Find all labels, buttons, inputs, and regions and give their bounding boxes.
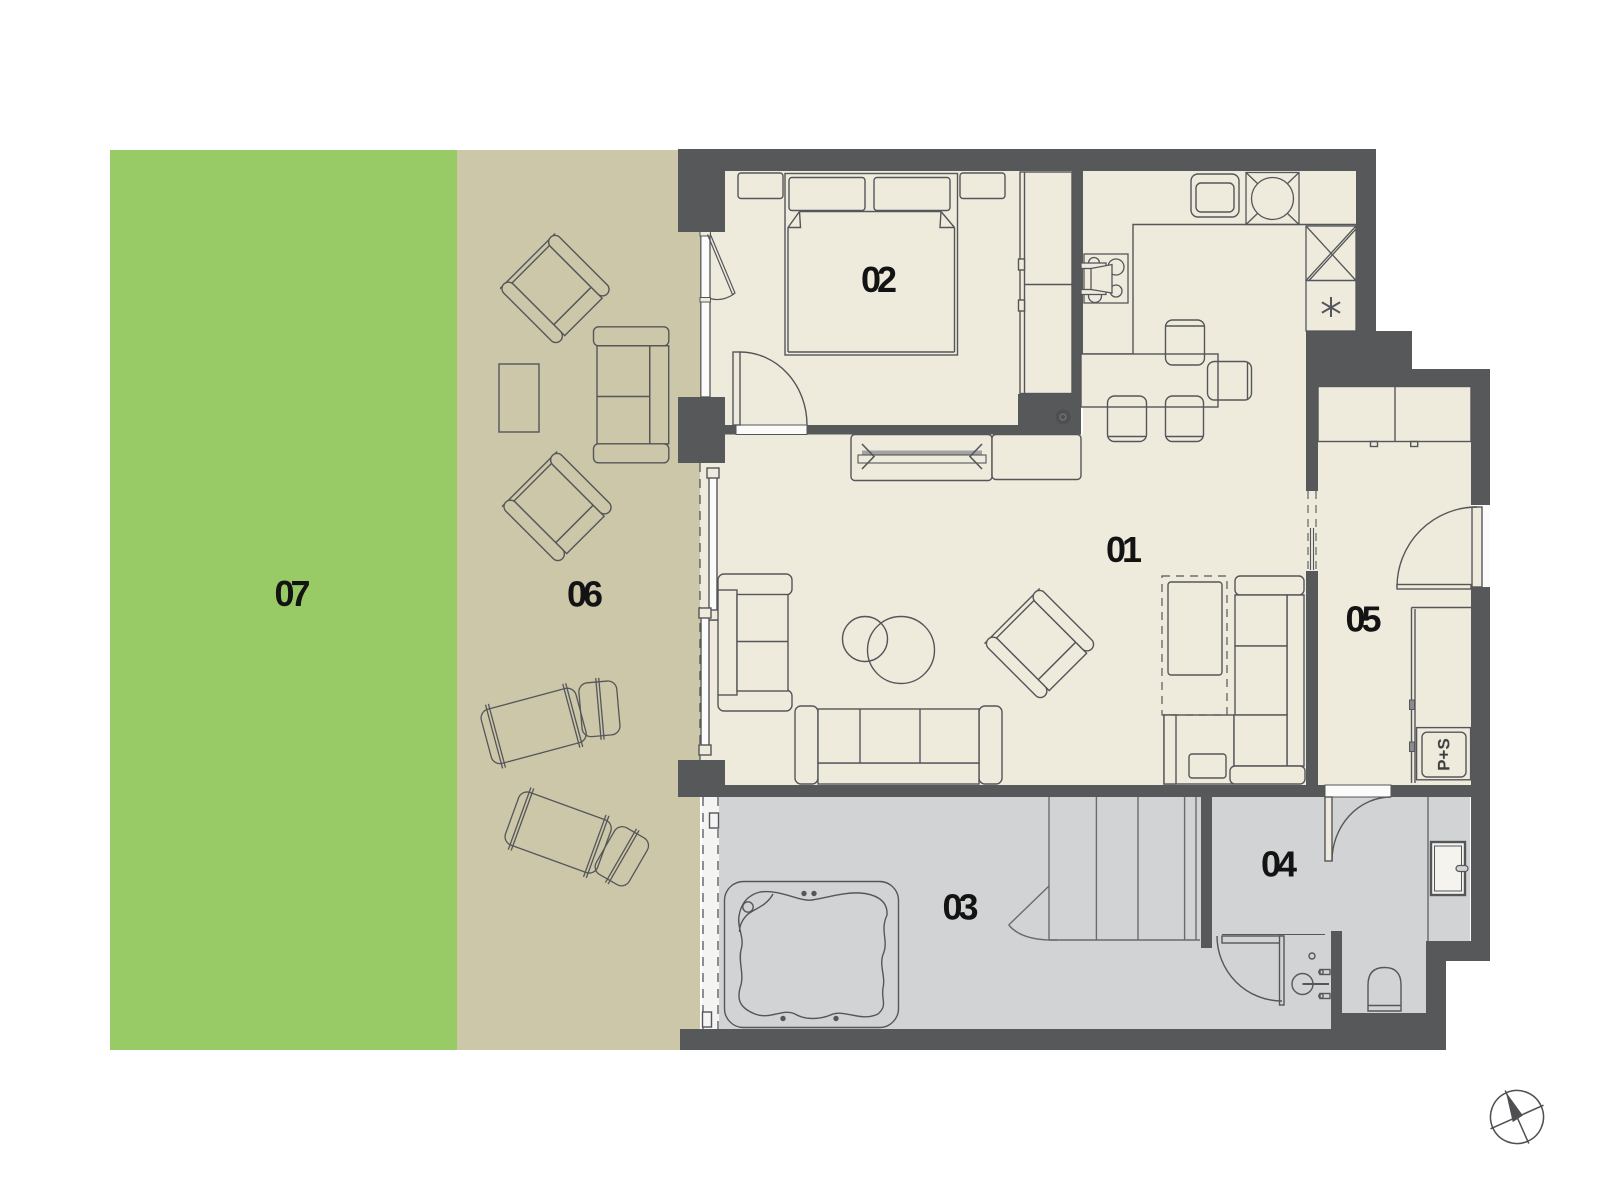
svg-text:P+S: P+S bbox=[1435, 738, 1454, 771]
svg-text:01: 01 bbox=[1106, 529, 1142, 570]
svg-text:05: 05 bbox=[1346, 599, 1382, 640]
svg-text:04: 04 bbox=[1261, 844, 1297, 885]
svg-text:02: 02 bbox=[861, 259, 897, 300]
svg-text:06: 06 bbox=[567, 574, 603, 615]
svg-text:03: 03 bbox=[943, 887, 979, 928]
svg-text:07: 07 bbox=[275, 573, 311, 614]
